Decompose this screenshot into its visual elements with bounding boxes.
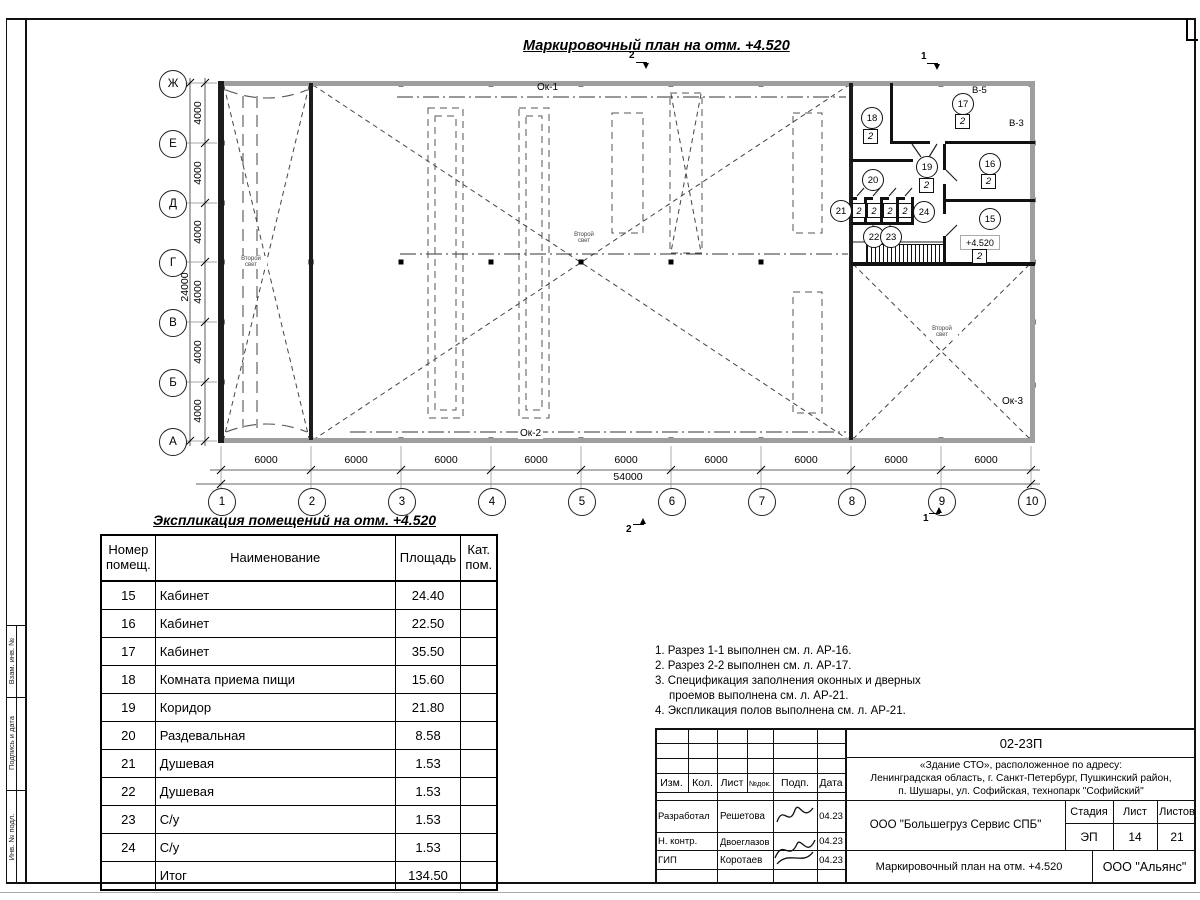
tb-line: [717, 728, 718, 883]
window-label-ok3: Ок-3: [1000, 396, 1025, 407]
category-value: 2: [924, 180, 929, 191]
axis-label: Б: [169, 377, 177, 389]
cell-num: 22: [101, 778, 155, 806]
dim-4000: 4000: [192, 391, 204, 431]
cell-name: С/у: [155, 834, 395, 862]
room-bubble-20: 20: [862, 169, 884, 191]
sheets-value: 21: [1158, 824, 1196, 849]
tb-name-3: Коротаев: [720, 851, 773, 869]
tb-line: [655, 869, 846, 870]
level-mark: +4.520: [960, 235, 1000, 250]
category-value: 2: [977, 251, 982, 262]
section-line: [929, 513, 940, 514]
section-number: 1: [923, 513, 929, 524]
axis-label: Е: [169, 138, 177, 150]
explication-table: Номер помещ. Наименование Площадь Кат. п…: [100, 534, 498, 891]
col-header-area: Площадь: [395, 535, 461, 581]
axis-label: 1: [219, 496, 225, 508]
wall-int: [945, 141, 1035, 144]
wall-bottom: [218, 438, 1035, 443]
tb-name-1: Решетова: [720, 801, 773, 832]
col-header-cat: Кат. пом.: [461, 535, 497, 581]
axis-bubble-col: 10: [1018, 488, 1046, 516]
room-number: 17: [958, 99, 969, 110]
axis-label: Д: [169, 198, 177, 210]
room-number: 24: [919, 207, 930, 218]
cell-cat: [461, 610, 497, 638]
axis-bubble-col: 7: [748, 488, 776, 516]
section-arrow-icon: [934, 64, 940, 70]
tb-date-2: 04.23: [817, 833, 845, 850]
tb-name-2: Двоеглазов: [720, 833, 773, 850]
axis-label: 5: [579, 496, 585, 508]
cubicle-wall: [851, 197, 857, 200]
room-bubble-23: 23: [880, 226, 902, 248]
note-4: 4. Экспликация полов выполнена см. л. АР…: [655, 704, 930, 719]
tb-line: [655, 743, 846, 744]
axis-bubble-col: 9: [928, 488, 956, 516]
axis-bubble-row: А: [159, 428, 187, 456]
cubicle-cat: 2: [867, 203, 881, 218]
dim-6000: 6000: [491, 454, 581, 466]
axis-bubble-row: Е: [159, 130, 187, 158]
cubicle-cat: 2: [883, 203, 897, 218]
axis-label: 8: [849, 496, 855, 508]
room-number: 16: [985, 159, 996, 170]
cell-cat: [461, 638, 497, 666]
axis-bubble-col: 6: [658, 488, 686, 516]
second-light-label: Второй свет: [926, 326, 958, 339]
axis-label: 2: [309, 496, 315, 508]
table-row: 17Кабинет35.50: [101, 638, 497, 666]
room-bubble-21: 21: [830, 200, 852, 222]
tb-col-data: Дата: [817, 774, 845, 792]
table-row: 24С/у1.53: [101, 834, 497, 862]
section-number: 1: [921, 51, 927, 62]
room-bubble-16: 16: [979, 153, 1001, 175]
doc-code: 02-23П: [847, 730, 1195, 757]
wall-top: [218, 81, 1035, 86]
cell-area: 134.50: [395, 862, 461, 891]
cell-cat: [461, 778, 497, 806]
table-row-total: Итог134.50: [101, 862, 497, 891]
cell-name: Душевая: [155, 778, 395, 806]
sheets-label: Листов: [1158, 801, 1196, 822]
drawing-sheet: Взам. инв. № Подпись и дата Инв. № подл.…: [0, 0, 1200, 900]
cell-num: 18: [101, 666, 155, 694]
room-number: 22: [869, 232, 880, 243]
tb-col-kol: Кол.: [688, 774, 717, 792]
category-value: 2: [871, 206, 876, 216]
axis-bubble-col: 4: [478, 488, 506, 516]
window-label-ok1: Ок-1: [537, 82, 558, 93]
second-light-text: Второй: [241, 256, 261, 262]
cell-num: [101, 862, 155, 891]
axis-bubble-row: Б: [159, 369, 187, 397]
room-cat-19: 2: [919, 178, 934, 193]
cell-name: Душевая: [155, 750, 395, 778]
col-header-num: Номер помещ.: [101, 535, 155, 581]
room-number: 19: [922, 162, 933, 173]
cell-num: 21: [101, 750, 155, 778]
sheet-label: Лист: [1114, 801, 1156, 822]
category-value: 2: [856, 206, 861, 216]
tb-col-izm: Изм.: [655, 774, 688, 792]
stage-value: ЭП: [1066, 824, 1112, 849]
cell-cat: [461, 581, 497, 610]
tb-date-1: 04.23: [817, 801, 845, 832]
wall-int: [891, 141, 930, 144]
second-light-text: Второй: [932, 326, 952, 332]
vent-label-v3: В-3: [1009, 119, 1024, 129]
room-cat-16: 2: [981, 174, 996, 189]
tb-line: [655, 728, 657, 883]
wall-int: [851, 159, 913, 162]
cubicle-wall: [851, 222, 914, 225]
dim-4000: 4000: [192, 212, 204, 252]
vent-label-v5: В-5: [972, 86, 987, 96]
cell-name: С/у: [155, 806, 395, 834]
wall-int: [890, 83, 893, 144]
room-number: 20: [868, 175, 879, 186]
axis-label: 6: [669, 496, 675, 508]
wall-axis-2: [309, 83, 313, 440]
second-light-text: Второй: [574, 232, 594, 238]
room-bubble-15: 15: [979, 208, 1001, 230]
axis-bubble-row: Д: [159, 190, 187, 218]
dim-6000: 6000: [581, 454, 671, 466]
axis-label: В: [169, 317, 177, 329]
section-line: [633, 524, 644, 525]
title-block: 02-23П «Здание СТО», расположенное по ад…: [655, 728, 1196, 883]
cell-num: 17: [101, 638, 155, 666]
tb-line: [655, 792, 846, 793]
cell-num: 20: [101, 722, 155, 750]
dim-6000: 6000: [401, 454, 491, 466]
second-light-text: свет: [936, 332, 948, 338]
table-row: 23С/у1.53: [101, 806, 497, 834]
note-1: 1. Разрез 1-1 выполнен см. л. АР-16.: [655, 644, 930, 659]
cell-name: Раздевальная: [155, 722, 395, 750]
dim-54000: 54000: [598, 471, 658, 483]
sheet-value: 14: [1114, 824, 1156, 849]
table-title: Экспликация помещений на отм. +4.520: [153, 512, 436, 528]
dim-6000: 6000: [311, 454, 401, 466]
cell-num: 19: [101, 694, 155, 722]
table-row: 16Кабинет22.50: [101, 610, 497, 638]
dim-6000: 6000: [221, 454, 311, 466]
cell-name: Кабинет: [155, 638, 395, 666]
axis-label: А: [169, 436, 177, 448]
second-light-text: свет: [245, 262, 257, 268]
cell-cat: [461, 834, 497, 862]
dim-24000: 24000: [179, 257, 191, 317]
room-cat-18: 2: [863, 129, 878, 144]
cell-num: 23: [101, 806, 155, 834]
section-arrow-icon: [643, 63, 649, 69]
stage-label: Стадия: [1066, 801, 1112, 822]
table-row: 15Кабинет24.40: [101, 581, 497, 610]
room-number: 18: [867, 113, 878, 124]
axis-bubble-col: 5: [568, 488, 596, 516]
cell-cat: [461, 722, 497, 750]
table-row: 20Раздевальная8.58: [101, 722, 497, 750]
cell-area: 35.50: [395, 638, 461, 666]
cell-num: 24: [101, 834, 155, 862]
dim-6000: 6000: [851, 454, 941, 466]
axis-label: 10: [1026, 496, 1039, 508]
room-bubble-18: 18: [861, 107, 883, 129]
dim-4000: 4000: [192, 332, 204, 372]
table-row: 18Комната приема пищи15.60: [101, 666, 497, 694]
firm-name: ООО "Альянс": [1093, 851, 1196, 882]
dim-6000: 6000: [761, 454, 851, 466]
dim-6000: 6000: [671, 454, 761, 466]
dim-4000: 4000: [192, 153, 204, 193]
project-address: «Здание СТО», расположенное по адресу: Л…: [847, 758, 1195, 799]
cell-area: 8.58: [395, 722, 461, 750]
room-number: 23: [886, 232, 897, 243]
tb-date-3: 04.23: [817, 851, 845, 869]
room-number: 15: [985, 214, 996, 225]
cell-cat: [461, 666, 497, 694]
tb-col-podp: Подп.: [773, 774, 817, 792]
cell-cat: [461, 750, 497, 778]
cubicle-cat: 2: [852, 203, 866, 218]
cell-name: Итог: [155, 862, 395, 891]
category-value: 2: [887, 206, 892, 216]
section-mark-2-top: 2: [629, 50, 635, 61]
tb-line: [655, 758, 846, 759]
tb-role-3: ГИП: [658, 851, 717, 869]
section-mark-1-bottom: 1: [923, 513, 929, 524]
wall-left: [218, 81, 224, 443]
table-row: 21Душевая1.53: [101, 750, 497, 778]
note-2: 2. Разрез 2-2 выполнен см. л. АР-17.: [655, 659, 930, 674]
room-bubble-24: 24: [913, 201, 935, 223]
second-light-label: Второй свет: [568, 232, 600, 245]
company-name: ООО "Большегруз Сервис СПБ": [847, 801, 1064, 849]
cell-area: 22.50: [395, 610, 461, 638]
axis-label: Ж: [168, 78, 179, 90]
dim-4000: 4000: [192, 93, 204, 133]
note-3: 3. Спецификация заполнения оконных и две…: [655, 674, 930, 704]
signature-1-icon: [775, 802, 815, 830]
cell-area: 1.53: [395, 778, 461, 806]
axis-bubble-row: Ж: [159, 70, 187, 98]
axis-label: Г: [170, 257, 176, 269]
cell-cat: [461, 806, 497, 834]
category-value: 2: [902, 206, 907, 216]
cell-area: 21.80: [395, 694, 461, 722]
tb-col-list: Лист: [717, 774, 747, 792]
window-label-ok2: Ок-2: [518, 428, 543, 439]
section-number: 2: [626, 524, 632, 535]
window-strip-lines: [350, 97, 848, 432]
col-header-name: Наименование: [155, 535, 395, 581]
cell-area: 1.53: [395, 834, 461, 862]
dim-6000: 6000: [941, 454, 1031, 466]
axis-label: 4: [489, 496, 495, 508]
room-cat-17: 2: [955, 114, 970, 129]
section-number: 2: [629, 50, 635, 61]
cell-area: 15.60: [395, 666, 461, 694]
axis-label: 3: [399, 496, 405, 508]
address-line: «Здание СТО», расположенное по адресу:: [920, 759, 1122, 772]
signature-2-icon: [773, 834, 817, 868]
cell-name: Кабинет: [155, 581, 395, 610]
cell-name: Кабинет: [155, 610, 395, 638]
second-light-label: Второй свет: [235, 256, 267, 269]
section-mark-1-top: 1: [921, 51, 927, 62]
notes-block: 1. Разрез 1-1 выполнен см. л. АР-16. 2. …: [655, 644, 930, 719]
second-light-text: свет: [578, 238, 590, 244]
table-row: 19Коридор21.80: [101, 694, 497, 722]
table-header-row: Номер помещ. Наименование Площадь Кат. п…: [101, 535, 497, 581]
table-row: 22Душевая1.53: [101, 778, 497, 806]
address-line: Ленинградская область, г. Санкт-Петербур…: [870, 772, 1171, 785]
cell-num: 16: [101, 610, 155, 638]
cell-num: 15: [101, 581, 155, 610]
room-number: 21: [836, 206, 847, 217]
dim-4000: 4000: [192, 272, 204, 312]
drawing-name: Маркировочный план на отм. +4.520: [847, 851, 1091, 882]
cell-area: 1.53: [395, 806, 461, 834]
category-value: 2: [868, 131, 873, 142]
section-arrow-icon: [936, 507, 942, 513]
room-bubble-19: 19: [916, 156, 938, 178]
wall-int: [943, 144, 946, 170]
cell-area: 24.40: [395, 581, 461, 610]
roof-opening-rects: [428, 93, 822, 418]
tb-col-ndok: №док.: [747, 774, 773, 792]
cell-cat: [461, 862, 497, 891]
cell-area: 1.53: [395, 750, 461, 778]
axis-bubble-col: 8: [838, 488, 866, 516]
tb-role-2: Н. контр.: [658, 833, 717, 850]
dimension-lines: [190, 78, 1040, 484]
room-bubble-17: 17: [952, 93, 974, 115]
wall-int: [945, 199, 1035, 202]
cell-name: Комната приема пищи: [155, 666, 395, 694]
cubicle-cat: 2: [898, 203, 912, 218]
category-value: 2: [986, 176, 991, 187]
category-value: 2: [960, 116, 965, 127]
axis-label: 7: [759, 496, 765, 508]
section-mark-2-bottom: 2: [626, 524, 632, 535]
cell-cat: [461, 694, 497, 722]
address-line: п. Шушары, ул. Софийская, технопарк "Соф…: [898, 785, 1143, 798]
cell-name: Коридор: [155, 694, 395, 722]
tb-role-1: Разработал: [658, 801, 717, 832]
section-arrow-icon: [640, 518, 646, 524]
room-cat-15: 2: [972, 249, 987, 264]
